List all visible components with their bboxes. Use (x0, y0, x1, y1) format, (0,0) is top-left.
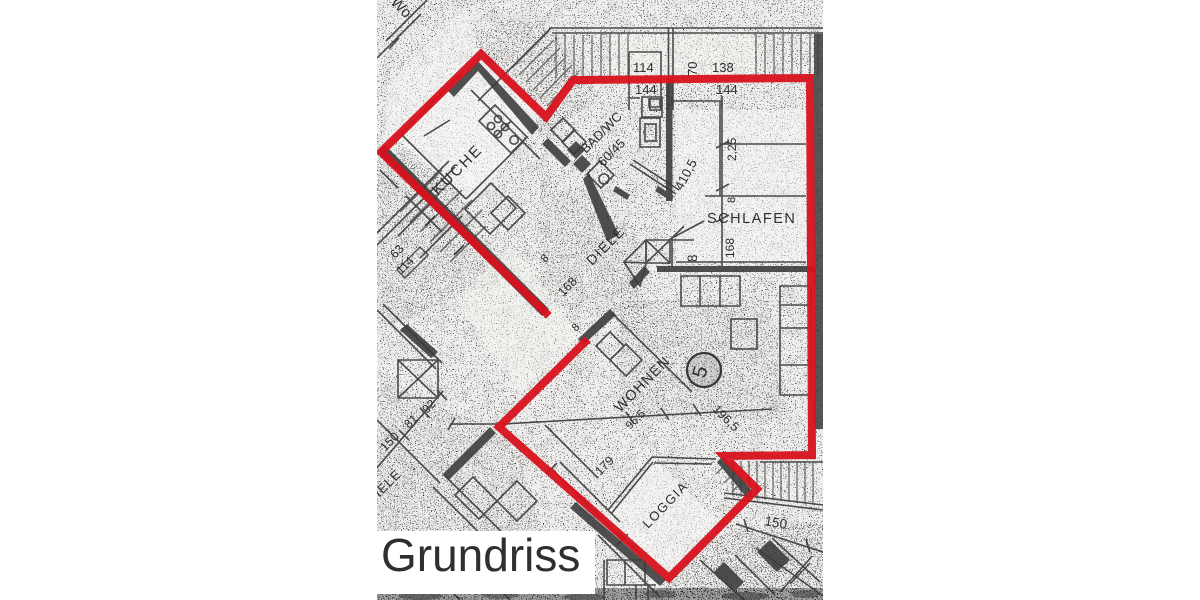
svg-text:70: 70 (685, 62, 700, 76)
svg-text:144: 144 (716, 82, 738, 97)
svg-text:8: 8 (726, 197, 738, 203)
svg-text:168: 168 (723, 238, 737, 258)
svg-text:2,25: 2,25 (725, 137, 739, 161)
svg-text:8: 8 (685, 254, 700, 262)
svg-text:114: 114 (633, 60, 654, 75)
svg-text:144: 144 (635, 82, 657, 97)
svg-text:138: 138 (712, 60, 734, 75)
svg-text:Grundriss: Grundriss (381, 529, 580, 581)
svg-text:SCHLAFEN: SCHLAFEN (707, 211, 796, 227)
